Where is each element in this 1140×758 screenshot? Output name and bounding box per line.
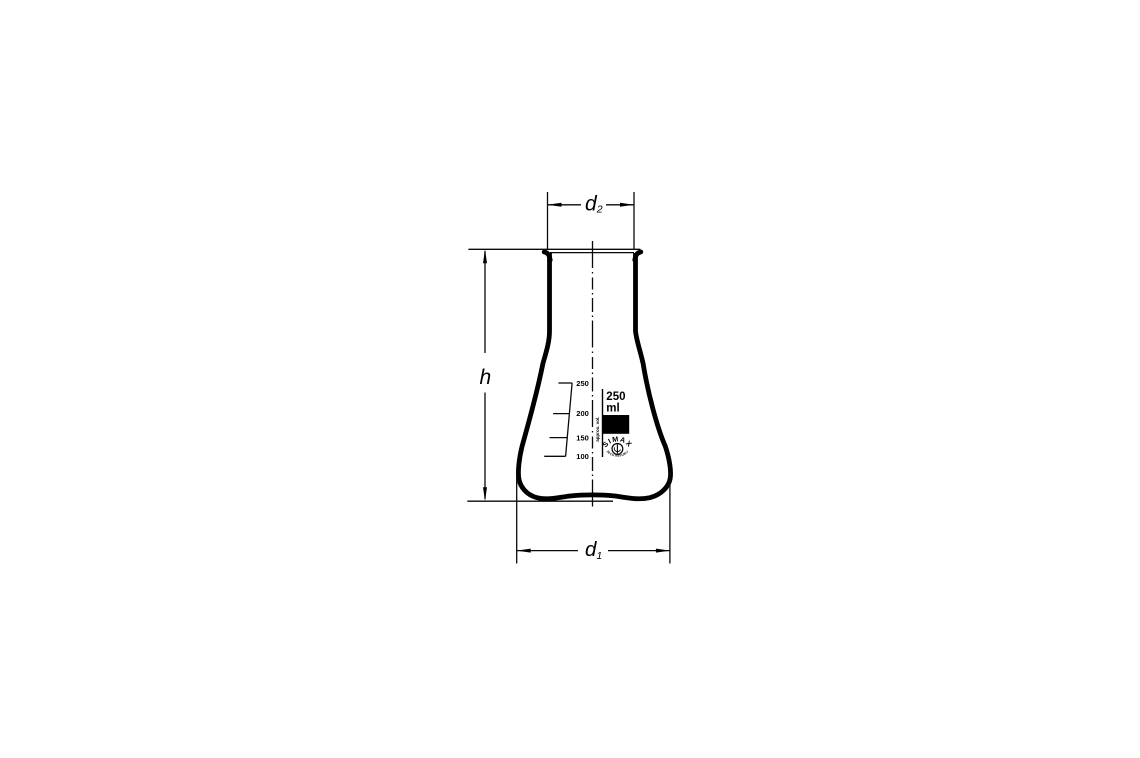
svg-text:250: 250 xyxy=(576,379,589,388)
svg-text:200: 200 xyxy=(576,409,589,418)
svg-text:ml: ml xyxy=(606,402,619,414)
svg-text:150: 150 xyxy=(576,433,589,442)
svg-text:100: 100 xyxy=(576,452,589,461)
svg-text:h: h xyxy=(480,366,492,389)
svg-text:approx. vol.: approx. vol. xyxy=(595,417,600,442)
svg-text:250: 250 xyxy=(606,391,625,403)
